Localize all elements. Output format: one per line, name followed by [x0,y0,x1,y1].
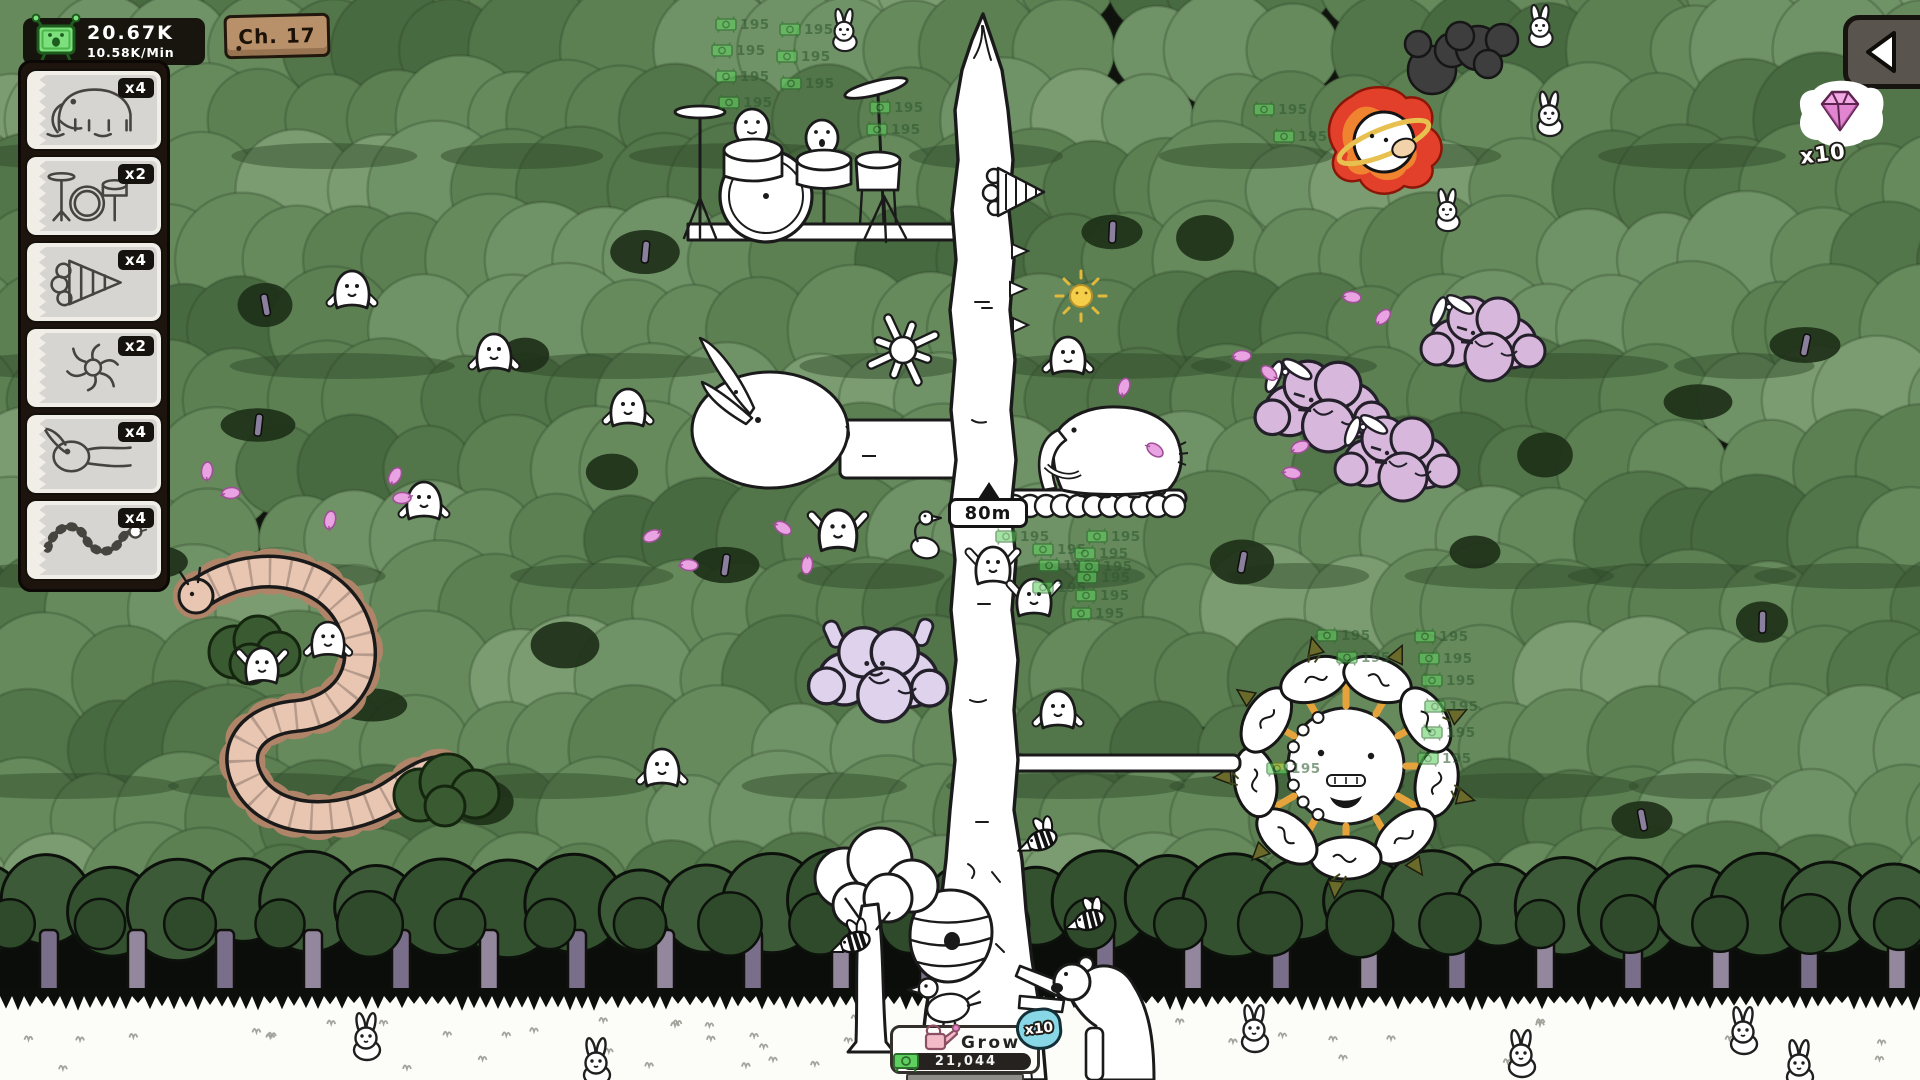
bear-mouth [1051,983,1063,993]
chapter-sign: Ch. 17 [223,13,330,60]
forest-scene [0,0,1920,1080]
card-drums[interactable]: x2 [27,157,161,235]
bunny-creature[interactable] [1509,1029,1535,1077]
bunny-creature[interactable] [1731,1006,1757,1054]
back-arrow-icon [1860,27,1904,77]
creature-card-panel: x4 x2 x4 x2 [18,60,170,592]
card-worm[interactable]: x4 [27,501,161,579]
card-mammoth[interactable]: x4 [27,71,161,149]
bunny-creature[interactable] [1242,1004,1268,1052]
grow-pedestal [906,1073,1024,1080]
card-multiplier-badge: x4 [118,508,154,528]
bunny-creature[interactable] [1538,91,1563,136]
card-drill[interactable]: x4 [27,243,161,321]
money-value: 20.67K [87,22,174,44]
goose-eye [755,417,761,423]
bunny-creature[interactable] [354,1012,380,1060]
card-multiplier-badge: x4 [118,422,154,442]
money-creature-icon [28,11,84,67]
drum-platform-branch [688,224,960,240]
height-value: 80m [965,503,1012,524]
card-goose[interactable]: x4 [27,415,161,493]
sign-nail [236,46,241,51]
card-multiplier-badge: x4 [118,78,154,98]
game-viewport: 1951951951951951951951951951951951951951… [0,0,1920,1080]
chapter-label: Ch. 17 [238,23,316,49]
sun-branch [1010,755,1240,771]
tree-height-marker: 80m [948,480,1032,528]
bunny-creature[interactable] [1436,188,1459,231]
mammoth-eye [1071,427,1076,432]
bunny-creature[interactable] [1529,4,1552,47]
grow-label: Grow [961,1033,1021,1053]
bunny-creature[interactable] [833,8,856,51]
card-multiplier-badge: x2 [118,336,154,356]
gem-counter[interactable]: x10 [1792,78,1888,178]
watering-can-icon [919,1021,961,1057]
money-rate: 10.58K/Min [87,45,174,60]
goose-branch [840,420,960,478]
grow-progress-bar: 21,044 [901,1053,1031,1070]
card-multiplier-badge: x4 [118,250,154,270]
sun-dot-creature[interactable] [1056,271,1106,321]
height-marker-arrow-icon [978,482,1000,499]
gem-count-label: x10 [1799,139,1847,168]
money-icon [892,1049,920,1073]
card-splat[interactable]: x2 [27,329,161,407]
money-panel: 20.67K 10.58K/Min [23,18,205,65]
grow-progress-value: 21,044 [935,1054,997,1069]
card-multiplier-badge: x2 [118,164,154,184]
hi-hat-cymbal [675,106,725,118]
hive-hole [944,932,960,950]
